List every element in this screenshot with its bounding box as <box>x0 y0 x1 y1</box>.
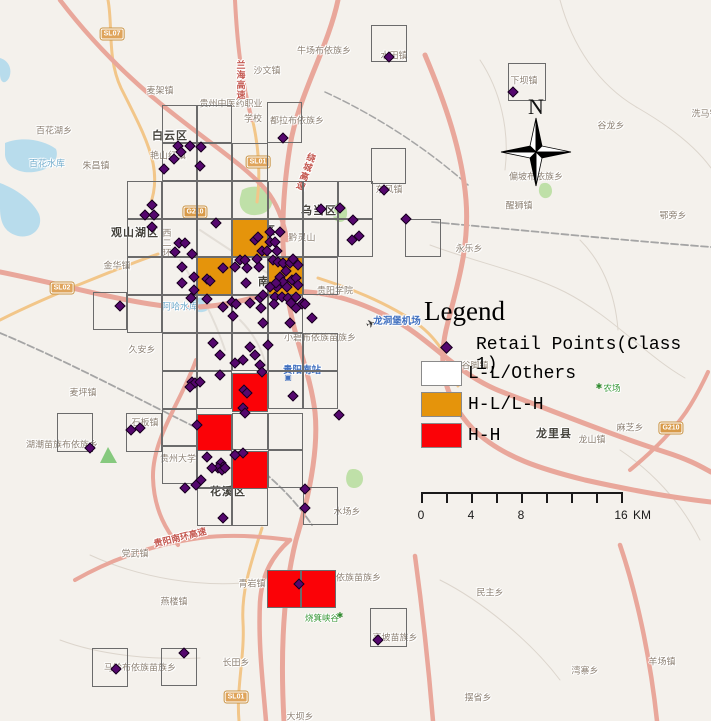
scale-bar-number: 16 <box>614 508 627 522</box>
retail-point <box>134 422 145 433</box>
scale-bar-tick <box>546 492 548 503</box>
retail-point <box>176 277 187 288</box>
retail-point <box>217 262 228 273</box>
retail-point <box>255 302 266 313</box>
retail-point <box>274 226 285 237</box>
legend-swatch <box>421 423 462 448</box>
scale-bar: 04816KM <box>421 486 661 520</box>
retail-point <box>110 663 121 674</box>
retail-point <box>84 442 95 453</box>
retail-point <box>237 447 248 458</box>
legend-point-row: Retail Points(Class 1) <box>428 335 705 359</box>
retail-point <box>315 203 326 214</box>
legend-item: L-L/Others <box>420 359 705 390</box>
north-arrow: N <box>493 90 583 195</box>
legend-items: L-L/OthersH-L/L-HH-H <box>420 359 705 452</box>
retail-point <box>148 209 159 220</box>
retail-point <box>244 297 255 308</box>
retail-point <box>214 369 225 380</box>
scale-bar-tick <box>596 492 598 503</box>
retail-point <box>178 647 189 658</box>
retail-point <box>191 419 202 430</box>
retail-point-marker-icon <box>440 341 453 354</box>
retail-point <box>186 248 197 259</box>
retail-point <box>195 141 206 152</box>
retail-point <box>207 337 218 348</box>
retail-point <box>214 349 225 360</box>
scale-bar-tick <box>496 492 498 503</box>
retail-point <box>227 310 238 321</box>
retail-point <box>114 300 125 311</box>
legend-swatch <box>421 392 462 417</box>
retail-point <box>262 339 273 350</box>
retail-point <box>158 163 169 174</box>
retail-point <box>277 132 288 143</box>
retail-point <box>287 390 298 401</box>
retail-point <box>347 214 358 225</box>
legend-swatch <box>421 361 462 386</box>
retail-point <box>372 634 383 645</box>
scale-bar-tick <box>446 492 448 503</box>
retail-point <box>240 277 251 288</box>
retail-point <box>299 502 310 513</box>
retail-point <box>284 317 295 328</box>
retail-point <box>257 317 268 328</box>
retail-point <box>194 160 205 171</box>
legend-item-label: H-H <box>468 426 500 446</box>
retail-point <box>179 482 190 493</box>
retail-point <box>306 312 317 323</box>
retail-point <box>268 298 279 309</box>
legend-item: H-L/L-H <box>420 390 705 421</box>
retail-point <box>146 199 157 210</box>
retail-point <box>378 184 389 195</box>
legend-item-label: H-L/L-H <box>468 395 544 415</box>
retail-point <box>210 217 221 228</box>
scale-bar-number: 4 <box>468 508 475 522</box>
scale-bar-tick <box>471 492 473 503</box>
retail-point <box>299 483 310 494</box>
retail-point <box>188 271 199 282</box>
scale-bar-tick <box>571 492 573 503</box>
scale-bar-tick <box>621 492 623 503</box>
legend: Legend Retail Points(Class 1) L-L/Others… <box>420 296 705 452</box>
legend-item: H-H <box>420 421 705 452</box>
retail-point <box>146 221 157 232</box>
legend-item-label: L-L/Others <box>468 364 576 384</box>
retail-point <box>400 213 411 224</box>
map-figure: 白云区观山湖区乌当区云岩区南明区花溪区麦架镇沙文镇牛场布依族乡水田镇都拉布依族乡… <box>0 0 711 721</box>
retail-point <box>201 451 212 462</box>
retail-point <box>201 293 212 304</box>
scale-bar-tick <box>421 492 423 503</box>
retail-point <box>217 512 228 523</box>
retail-point <box>176 261 187 272</box>
scale-bar-tick <box>521 492 523 503</box>
scale-bar-number: 0 <box>418 508 425 522</box>
retail-point <box>383 51 394 62</box>
scale-bar-number: 8 <box>518 508 525 522</box>
scale-bar-unit: KM <box>633 508 651 522</box>
legend-title: Legend <box>424 296 705 327</box>
retail-point <box>293 578 304 589</box>
retail-point <box>334 202 345 213</box>
north-label: N <box>528 94 544 120</box>
retail-point <box>184 140 195 151</box>
retail-point <box>333 409 344 420</box>
